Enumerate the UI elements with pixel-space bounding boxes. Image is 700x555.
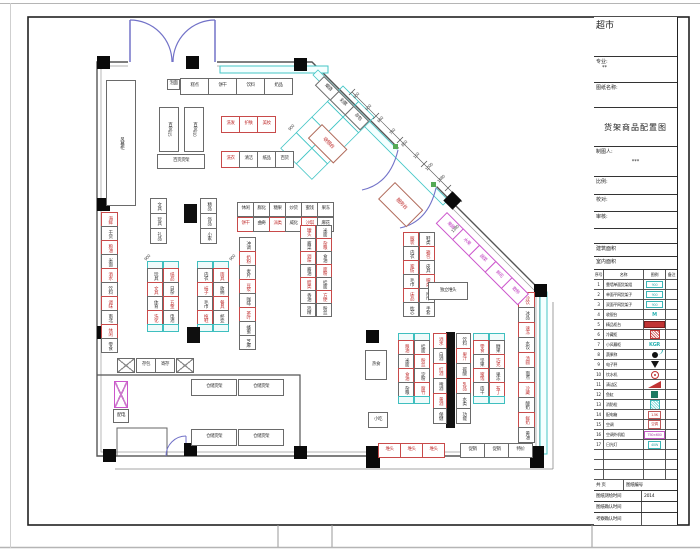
survey-time-label: 图纸测绘时间 [594, 491, 642, 501]
structural-column [103, 449, 116, 462]
shelf-endcap [489, 396, 505, 404]
legend-row: 1靠墙单面货架组900 [594, 280, 677, 290]
counter-block [187, 327, 200, 343]
legend-symbol-cell: 900 [644, 280, 666, 289]
shelf-cell: 袜子 [197, 282, 213, 297]
shelf-cell: 清洁 [239, 151, 258, 168]
cyanhatch-legend-icon [650, 400, 660, 409]
legend-symbol-cell [644, 460, 666, 469]
cyantext-legend-icon: M [652, 312, 657, 318]
lamp-legend-icon [651, 361, 659, 368]
shelf-cell: 内衣 [403, 246, 419, 261]
shelf-cell: 休闲 [237, 202, 254, 217]
shelf-cell: 芝麻 [239, 335, 256, 350]
shelf-cell: 饰品 [200, 213, 217, 229]
crossed-fixture [176, 358, 194, 373]
confirm-time-row: 图纸确认时间 [594, 502, 677, 513]
storage-rack: 仓储货架 [191, 429, 237, 446]
shelf-cell: 调味 [101, 296, 118, 311]
shelf-cell: 茶叶 [239, 307, 256, 322]
legend-row: 8蔬果称 [594, 350, 677, 360]
legend-no-cell: 2 [594, 290, 604, 299]
redbar-legend-icon [644, 321, 665, 328]
shelf-cell: 白酒 [433, 348, 447, 364]
blank-field [594, 229, 677, 244]
legend-header-cell: 序号 [594, 270, 604, 279]
title-block: 超市 专业: ** 图纸名称: 货架商品配置图 制图人: *** 比例: 校对:… [594, 17, 678, 525]
shelf-cell: 礼品 [150, 228, 167, 244]
dimension-label: 600 [352, 91, 360, 99]
major-label: 专业: [596, 58, 675, 65]
shelf-box: 热食 [365, 350, 387, 380]
draftsman-field: 制图人: *** [594, 147, 677, 177]
shelf-cell: 存包 [136, 358, 156, 373]
shelf-cell: 服装 [403, 232, 419, 247]
building-area-label: 建筑面积 [596, 245, 675, 252]
shelf-run: 零食坚果蜜饯肉干 [473, 333, 489, 404]
scale-field: 比例: [594, 177, 677, 195]
shelf-run: 糕点饼干饮料奶品 [180, 78, 293, 95]
legend-no-cell: 3 [594, 300, 604, 309]
legend-symbol-cell [644, 370, 666, 379]
shelf-cell: 曲奇 [253, 217, 270, 232]
shelf-cell: 咖啡 [239, 293, 256, 308]
shelf-endcap [213, 324, 229, 332]
cad-sheet: 糕点饼干饮料奶品洗发护肤美妆洗衣清洁纸品百货海鲜干货粮油米面酒水饮料调味南北休闲… [0, 0, 700, 555]
shelf-box: 百货货架 [157, 154, 205, 169]
shelf-cell: 粮油 [398, 340, 414, 355]
shelf-cell: 派类 [269, 217, 286, 232]
shelf-box: 泡面 [167, 79, 180, 90]
shelf-run: 纸品日杂五金电池 [163, 261, 179, 332]
legend-symbol-cell: KGR [644, 340, 666, 349]
legend-note-cell [666, 380, 677, 389]
shelf-cell: 红酒 [433, 363, 447, 379]
scale-label: 比例: [596, 178, 675, 185]
legend-note-cell [666, 440, 677, 449]
legend-row: 13消防栓 [594, 400, 677, 410]
legend-note-cell [666, 340, 677, 349]
dimension-label: 1000 [424, 162, 434, 172]
shelf-cell: 奶品 [264, 78, 293, 95]
shelf-cell: 餐具 [213, 296, 229, 311]
legend-row [594, 470, 677, 480]
legend-note-cell [666, 300, 677, 309]
legend-row: 5精品柜台 [594, 320, 677, 330]
shelf-run: 鞋类箱包皮具帽类围巾手套 [419, 232, 435, 317]
legend-note-cell [666, 330, 677, 339]
shelf-run: 文具玩具礼品 [150, 198, 167, 244]
shelf-run: 海鲜干货粮油米面酒水饮料调味南北休闲零食 [101, 212, 118, 353]
shelf-cell: 果冻 [317, 202, 334, 217]
shelf-cell: 蜜饯 [473, 368, 489, 383]
shelf-cell: 碳酸 [456, 363, 471, 379]
inspect-time-label: 考察确认时间 [594, 513, 642, 525]
shelf-cell: 粉丝 [316, 303, 332, 317]
storage-rack: 仓储货架 [238, 379, 284, 396]
shelf-run: 休闲膨化糖果炒货蜜饯果冻 [237, 202, 334, 217]
inspect-time-row: 考察确认时间 [594, 513, 677, 525]
legend-no-cell: 12 [594, 390, 604, 399]
shelf-cell: 醋类 [300, 277, 316, 291]
dimension-label: 900 [287, 123, 295, 131]
shelf-cell: 冰品 [518, 307, 535, 323]
shelf-cell: 功能 [456, 408, 471, 424]
legend-no-cell: 11 [594, 380, 604, 389]
legend-symbol-cell: M [644, 310, 666, 319]
shelf-cell: 香油 [300, 290, 316, 304]
cashier-desk: 收银台 [308, 124, 348, 164]
legend-name-cell: 消防栓 [604, 400, 644, 409]
shelf-cell: 米面 [398, 354, 414, 369]
legend-name-cell: 鱼缸 [604, 390, 644, 399]
legend-name-cell: 冷藏柜 [604, 330, 644, 339]
shelf-cell: 堆头 [422, 443, 445, 458]
shelf-cell: 体育 [147, 296, 163, 311]
shelf-cell: 毛巾 [403, 274, 419, 289]
legend-row: 17日光灯40W [594, 440, 677, 450]
shelf-run: 罐头酱菜调味酱油醋类香油鸡精 [300, 225, 316, 317]
legend-row: 2单面平网货架子900 [594, 290, 677, 300]
magbox-legend-icon: 750×600 [644, 431, 664, 439]
shelf-cell: 枕芯 [403, 302, 419, 317]
legend-name-cell [604, 450, 644, 459]
redcircle-legend-icon [651, 371, 659, 379]
shelf-cell: 毛巾 [197, 296, 213, 311]
confirm-time-value [642, 502, 677, 512]
legend-note-cell [666, 430, 677, 439]
legend-symbol-cell: 900 [644, 290, 666, 299]
legend-row: 16空调外机组750×600 [594, 430, 677, 440]
shelf-cell: 乳品 [456, 378, 471, 394]
shelf-run: 酒水白酒红酒啤酒黄酒保健 [433, 333, 447, 424]
shelf-run: 存包寄存 [136, 358, 175, 373]
shelf-run: 洗衣清洁纸品百货 [221, 151, 294, 168]
shelf-cell: 米面 [316, 225, 332, 239]
shelf-run: 玩具文具体育洗化 [147, 261, 163, 332]
counter-block [184, 204, 197, 223]
legend-note-cell [666, 410, 677, 419]
shelf-cell: 纸品 [257, 151, 276, 168]
legend-symbol-cell: 40W [644, 440, 666, 449]
dimension-label: 850 [400, 139, 408, 147]
legend-name-cell: 蔬果称 [604, 350, 644, 359]
shelf-cell: 拖鞋 [197, 310, 213, 325]
shelf-cell: 洗化 [147, 310, 163, 325]
shelf-cell: 特价 [508, 443, 533, 458]
shelf-cell: 床品 [403, 288, 419, 303]
dimension-label: 600 [364, 103, 372, 111]
shelf-cell: 内衣 [197, 268, 213, 283]
legend-symbol-cell [644, 350, 666, 359]
storage-rack: 仓储货架 [238, 429, 284, 446]
legend-row [594, 460, 677, 470]
structural-column [294, 446, 307, 459]
shelf-cell: 文具 [150, 198, 167, 214]
shelf-cell: 收纳 [213, 282, 229, 297]
shelf-run: 冲调奶粉麦片豆浆咖啡茶叶蜂蜜芝麻 [239, 237, 256, 350]
empty-symbol [654, 454, 655, 455]
building-area-field: 建筑面积 [594, 244, 677, 257]
shelf-cell: 手套 [419, 302, 435, 317]
shelf-cell: 果冻 [489, 368, 505, 383]
drawing-no-label: 图纸编号 [624, 480, 677, 490]
legend-symbol-cell: 900 [644, 300, 666, 309]
structural-column [186, 56, 199, 69]
legend-symbol-cell [644, 470, 666, 479]
shelf-cell: 五金 [163, 296, 179, 311]
legend-symbol-cell [644, 360, 666, 369]
legend-note-cell [666, 370, 677, 379]
legend-note-cell [666, 390, 677, 399]
redwedge-legend-icon [648, 381, 661, 388]
legend-header-cell: 名称 [604, 270, 644, 279]
legend-row: 14配电箱1.5K [594, 410, 677, 420]
legend-symbol-cell: 750×600 [644, 430, 666, 439]
shelf-cell: 粮油 [101, 240, 118, 255]
legend-no-cell: 15 [594, 420, 604, 429]
shelf-cell: 洗发 [221, 116, 240, 133]
cyanrect-legend-icon: 900 [646, 281, 663, 288]
major-field: 专业: ** [594, 57, 677, 83]
structural-column [97, 56, 110, 69]
structural-column [366, 330, 379, 343]
legend-header: 序号名称图例备注 [594, 270, 677, 280]
cyanrect-legend-icon: 900 [646, 301, 663, 308]
legend-note-cell [666, 460, 677, 469]
shelf-cell: 饮料 [236, 78, 265, 95]
shelf-run: 精品饰品小家 [200, 198, 217, 244]
shelf-cell: 蜜饯 [301, 202, 318, 217]
shelf-cell: 促销 [460, 443, 485, 458]
shelf-cell: 调味 [300, 251, 316, 265]
legend-table: 序号名称图例备注1靠墙单面货架组9002单面平网货架子9003双面平网货架子90… [594, 270, 677, 480]
legend-name-cell: 清洁区 [604, 380, 644, 389]
service-desk: 服务台 [378, 182, 423, 227]
shelf-run: 内衣袜子毛巾拖鞋 [197, 261, 213, 332]
legend-note-cell [666, 420, 677, 429]
legend-no-cell: 1 [594, 280, 604, 289]
shelf-box: 百货915 [159, 107, 179, 152]
shelf-cell: 零食 [473, 340, 489, 355]
shelf-cell: 腐竹 [414, 382, 430, 397]
legend-row [594, 450, 677, 460]
shelf-cell: 冷藏 [518, 382, 535, 398]
shelf-cell: 速冻 [518, 322, 535, 338]
dimension-label: 740 [388, 127, 396, 135]
structural-column [443, 191, 461, 209]
blackdot-legend-icon [652, 352, 658, 358]
shelf-endcap [398, 396, 414, 404]
shelf-cell: 南北 [101, 310, 118, 325]
shelf-cell: 干货 [101, 226, 118, 241]
shelf-cell: 面点 [518, 367, 535, 383]
drawing-title: 货架商品配置图 [594, 108, 677, 147]
shelf-cell: 箱包 [419, 246, 435, 261]
stair-block [114, 381, 128, 408]
dimension-label: 1480 [436, 174, 446, 184]
legend-row: 3双面平网货架子900 [594, 300, 677, 310]
shelf-cell: 食油 [316, 251, 332, 265]
shelf-run: 烟酒彩票存包 [315, 76, 369, 130]
cyantext-legend-icon: KGR [649, 342, 660, 348]
shelf-cell: 护肤 [239, 116, 258, 133]
drawing-name-label: 图纸名称: [596, 84, 675, 91]
shelf-cell: 文具 [147, 282, 163, 297]
dimension-label: 900 [228, 253, 236, 261]
shelf-cell: 豆浆 [239, 279, 256, 294]
legend-name-cell [604, 460, 644, 469]
legend-name-cell: 单面平网货架子 [604, 290, 644, 299]
shelf-cell: 巧克 [489, 354, 505, 369]
legend-name-cell [604, 470, 644, 479]
legend-note-cell [666, 290, 677, 299]
shelf-cell: 鲜奶 [518, 412, 535, 428]
shelf-run: 粮油米面食油杂粮 [398, 333, 414, 404]
legend-symbol-cell: 空调 [644, 420, 666, 429]
shelf-cell: 洗衣 [221, 151, 240, 168]
legend-no-cell: 16 [594, 430, 604, 439]
shelf-cell: 粉丝 [414, 354, 430, 369]
legend-name-cell: 配电箱 [604, 410, 644, 419]
shelf-cell: 酒水 [433, 333, 447, 349]
drawing-name-field: 图纸名称: [594, 83, 677, 108]
legend-row: 9电子秤 [594, 360, 677, 370]
shelf-cell: 米面 [101, 254, 118, 269]
pages-label: 共 页 [594, 480, 624, 490]
empty-symbol [654, 464, 655, 465]
inspect-time-value [642, 513, 677, 525]
legend-header-cell: 备注 [666, 270, 677, 279]
shelf-cell: 保健 [433, 408, 447, 424]
shelf-cell: 寄存 [155, 358, 175, 373]
shelf-cell: 饮料 [101, 282, 118, 297]
cyanrect-legend-icon: 900 [646, 291, 663, 298]
legend-note-cell [666, 470, 677, 479]
legend-name-cell: 精品柜台 [604, 320, 644, 329]
shelf-cell: 冲调 [239, 237, 256, 252]
legend-no-cell: 9 [594, 360, 604, 369]
shelf-cell: 精品 [200, 198, 217, 214]
survey-time-value: 2014 [642, 491, 677, 501]
shelf-cell: 方便 [316, 290, 332, 304]
legend-symbol-cell: 1.5K [644, 410, 666, 419]
structural-column [534, 284, 547, 297]
shelf-cell: 酸奶 [518, 397, 535, 413]
shelf-box: 百货910 [184, 107, 204, 152]
dimension-label: 640 [376, 115, 384, 123]
legend-no-cell: 5 [594, 320, 604, 329]
shelf-cell: 坚果 [473, 354, 489, 369]
shelf-cell: 堆头 [378, 443, 401, 458]
shelf-cell: 麦片 [239, 265, 256, 280]
shelf-cell: 水类 [456, 393, 471, 409]
legend-no-cell [594, 450, 604, 459]
audit-field: 审核: [594, 212, 677, 229]
shelf-cell: 鸡精 [300, 303, 316, 317]
shelf-cell: 杯壶 [213, 310, 229, 325]
legend-note-cell [666, 320, 677, 329]
draftsman-label: 制图人: [596, 148, 675, 155]
legend-name-cell: 日光灯 [604, 440, 644, 449]
shelf-cell: 日杂 [163, 282, 179, 297]
legend-name-cell: 小风幕柜 [604, 340, 644, 349]
shelf-box: 小吃 [368, 412, 388, 428]
shelf-cell: 纸品 [163, 268, 179, 283]
shelf-cell: 酱菜 [300, 238, 316, 252]
shelf-run: 雨具收纳餐具杯壶 [213, 261, 229, 332]
legend-name-cell: 空调 [604, 420, 644, 429]
shelf-cell: 糖果 [269, 202, 286, 217]
legend-note-cell [666, 450, 677, 459]
shelf-cell: 美妆 [257, 116, 276, 133]
shelf-cell: 雨具 [213, 268, 229, 283]
shelf-run: 糖果巧克果冻布丁 [489, 333, 505, 404]
shelf-run: 冷饮冰品速冻水饺汤圆面点冷藏酸奶鲜奶黄油 [518, 292, 535, 443]
shelf-cell: 啤酒 [433, 378, 447, 394]
shelf-endcap [147, 324, 163, 332]
legend-name-cell: 饮水机 [604, 370, 644, 379]
shelf-cell: 电池 [163, 310, 179, 325]
legend-symbol-cell [644, 450, 666, 459]
shelf-endcap [473, 396, 489, 404]
legend-symbol-cell [644, 330, 666, 339]
shelf-cell: 布丁 [489, 382, 505, 397]
pages-row: 共 页 图纸编号 [594, 480, 677, 491]
project-title: 超市 [594, 17, 677, 57]
legend-symbol-cell [644, 400, 666, 409]
indoor-area-field: 室内面积 [594, 257, 677, 270]
legend-name-cell: 电子秤 [604, 360, 644, 369]
major-value: ** [596, 65, 675, 71]
legend-note-cell [666, 310, 677, 319]
legend-row: 6冷藏柜 [594, 330, 677, 340]
shelf-cell: 饼干 [237, 217, 254, 232]
shelf-cell: 酱油 [300, 264, 316, 278]
empty-symbol [654, 474, 655, 475]
tealbox-legend-icon [651, 391, 658, 398]
shelf-run: 堆头堆头堆头 [378, 443, 445, 458]
legend-no-cell [594, 470, 604, 479]
shelf-run: 洗发护肤美妆 [221, 116, 276, 133]
shelf-run: 米面杂粮食油面粉挂面方便粉丝 [316, 225, 332, 317]
legend-note-cell [666, 400, 677, 409]
legend-header-cell: 图例 [644, 270, 666, 279]
redbox-legend-icon: 1.5K [648, 411, 661, 419]
shelf-cell: 杂粮 [398, 382, 414, 397]
redhatch-legend-icon [650, 330, 660, 339]
legend-row: 15空调空调 [594, 420, 677, 430]
legend-name-cell: 双面平网货架子 [604, 300, 644, 309]
legend-name-cell: 靠墙单面货架组 [604, 280, 644, 289]
legend-row: 12鱼缸 [594, 390, 677, 400]
shelf-cell: 百货 [275, 151, 294, 168]
shelf-cell: 食油 [398, 368, 414, 383]
legend-no-cell [594, 460, 604, 469]
cyanbox-legend-icon: 40W [648, 441, 661, 449]
shelf-cell: 休闲 [101, 324, 118, 339]
legend-row: 10饮水机 [594, 370, 677, 380]
legend-no-cell: 8 [594, 350, 604, 359]
shelf-cell: 炒货 [285, 202, 302, 217]
legend-symbol-cell [644, 390, 666, 399]
confirm-time-label: 图纸确认时间 [594, 502, 642, 512]
shelf-cell: 挂面 [316, 277, 332, 291]
shelf-cell: 家纺 [403, 260, 419, 275]
air-curtain-cabinet: 风幕柜 [106, 80, 136, 206]
legend-symbol-cell [644, 320, 666, 329]
shelf-cell: 挂面 [414, 340, 430, 355]
